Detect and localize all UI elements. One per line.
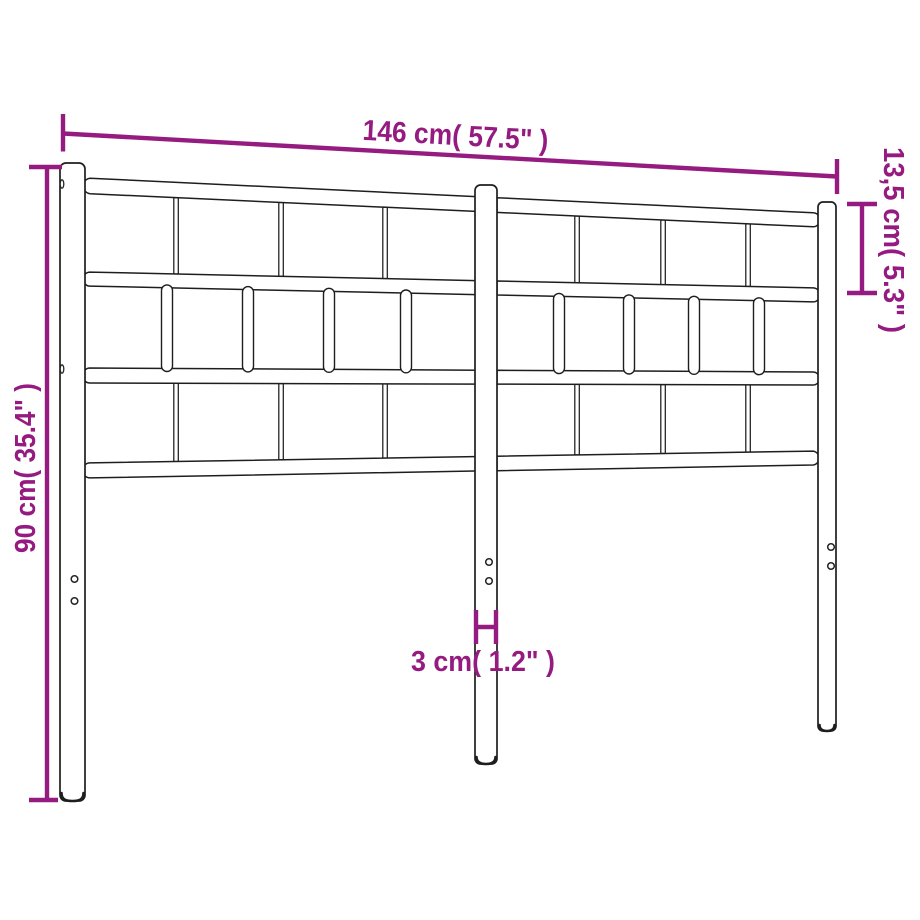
rail-1-left [83, 178, 487, 211]
slat [746, 224, 751, 287]
slat [746, 385, 751, 452]
slat [575, 216, 580, 283]
wide-slat [689, 296, 700, 374]
screw-hole [60, 180, 64, 188]
wide-slat [554, 293, 565, 373]
headboard-dimension-diagram: 146 cm( 57.5" ) 90 cm( 35.4" ) 13,5 cm( … [0, 0, 920, 920]
screw-hole [486, 559, 493, 566]
rail-2-right [497, 281, 820, 302]
slat [279, 384, 284, 460]
slat [383, 207, 388, 278]
slats-row-bottom [174, 383, 751, 461]
wide-slat [624, 295, 635, 374]
rail-2-left [83, 272, 488, 295]
slat [279, 203, 284, 277]
upper-section-dimension: 13,5 cm( 5.3" ) [847, 147, 909, 333]
wide-slat [162, 285, 173, 372]
screw-hole [71, 576, 78, 583]
rail-1-right [497, 198, 820, 227]
upper-section-dimension-label: 13,5 cm( 5.3" ) [877, 147, 909, 333]
wide-slat [324, 288, 335, 372]
post-width-dimension-label: 3 cm( 1.2" ) [411, 646, 555, 678]
rails [83, 178, 821, 478]
height-dimension: 90 cm( 35.4" ) [10, 167, 62, 800]
slat [661, 220, 666, 285]
product-dimension-image: { "diagram": { "type": "product-dimensio… [0, 0, 920, 920]
screw-hole [71, 598, 78, 605]
slat [383, 384, 388, 458]
screw-hole [60, 365, 64, 373]
screw-hole [828, 544, 835, 551]
height-dimension-label: 90 cm( 35.4" ) [10, 383, 42, 553]
slat [661, 385, 666, 454]
wide-slat [401, 290, 412, 373]
slat [575, 384, 580, 455]
screw-hole [828, 563, 835, 570]
right-post [818, 202, 836, 731]
rail-4-right [497, 451, 819, 471]
headboard-outline [60, 163, 836, 801]
left-post [60, 163, 85, 801]
rail-3-left [83, 368, 488, 384]
wide-slat [243, 287, 254, 372]
slat [174, 198, 179, 274]
slat [174, 383, 179, 461]
rail-3-right [497, 370, 820, 385]
screw-hole [486, 578, 493, 585]
rail-4-left [83, 457, 489, 478]
wide-slat [754, 298, 765, 375]
